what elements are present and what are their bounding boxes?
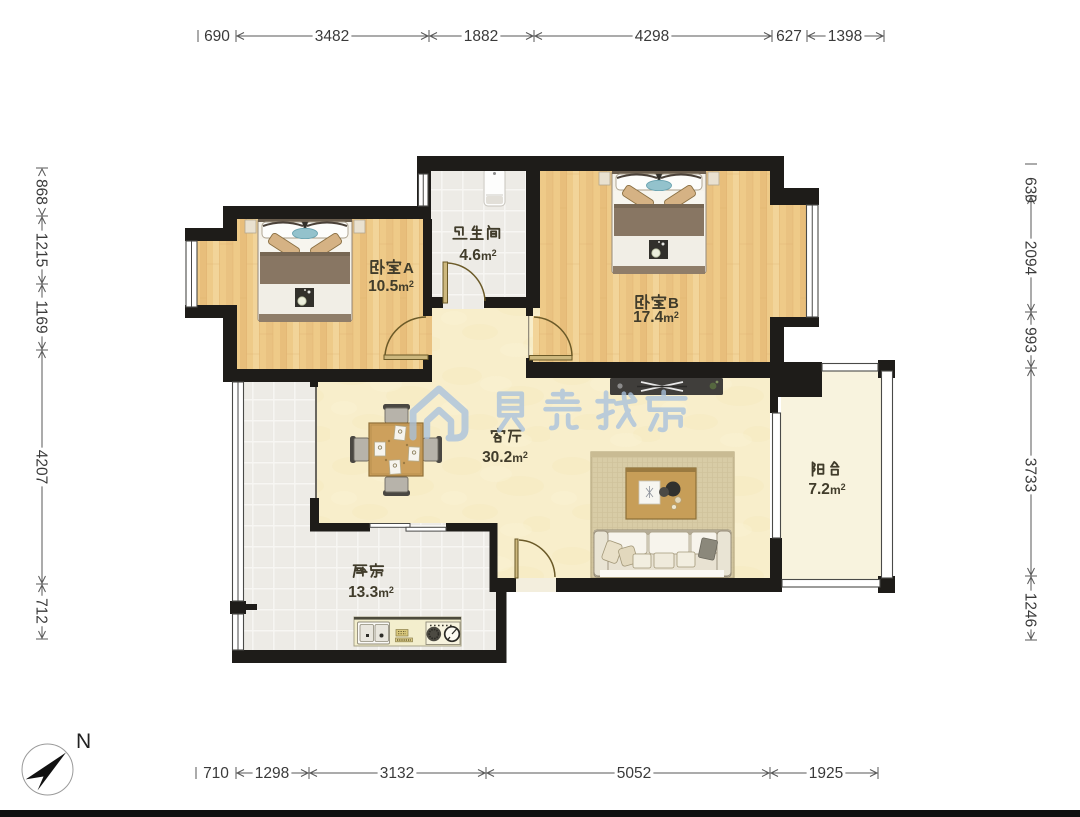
svg-text:2094: 2094 [1022, 241, 1039, 276]
svg-text:7.2m2: 7.2m2 [808, 481, 845, 498]
svg-text:13.3m2: 13.3m2 [348, 584, 394, 601]
svg-text:1246: 1246 [1022, 593, 1039, 627]
svg-text:868: 868 [33, 179, 50, 205]
svg-text:4298: 4298 [635, 28, 669, 45]
svg-text:1925: 1925 [809, 765, 843, 782]
svg-text:710: 710 [203, 765, 229, 782]
svg-text:4207: 4207 [33, 450, 50, 484]
svg-text:1398: 1398 [828, 28, 862, 45]
svg-text:630: 630 [1022, 177, 1039, 203]
svg-text:993: 993 [1022, 327, 1039, 353]
svg-text:1882: 1882 [464, 28, 498, 45]
svg-text:30.2m2: 30.2m2 [482, 449, 528, 466]
svg-text:10.5m2: 10.5m2 [368, 278, 414, 295]
svg-text:1169: 1169 [33, 300, 50, 333]
svg-text:4.6m2: 4.6m2 [459, 247, 496, 264]
svg-text:3132: 3132 [380, 765, 414, 782]
svg-text:712: 712 [33, 598, 50, 624]
svg-text:690: 690 [204, 28, 230, 45]
svg-text:1298: 1298 [255, 765, 289, 782]
svg-text:3733: 3733 [1022, 458, 1039, 492]
svg-text:1215: 1215 [33, 233, 50, 267]
svg-text:A: A [403, 260, 414, 277]
svg-text:627: 627 [776, 28, 802, 45]
svg-text:3482: 3482 [315, 28, 349, 45]
svg-text:5052: 5052 [617, 765, 651, 782]
svg-text:17.4m2: 17.4m2 [633, 309, 679, 326]
svg-text:N: N [76, 730, 91, 753]
